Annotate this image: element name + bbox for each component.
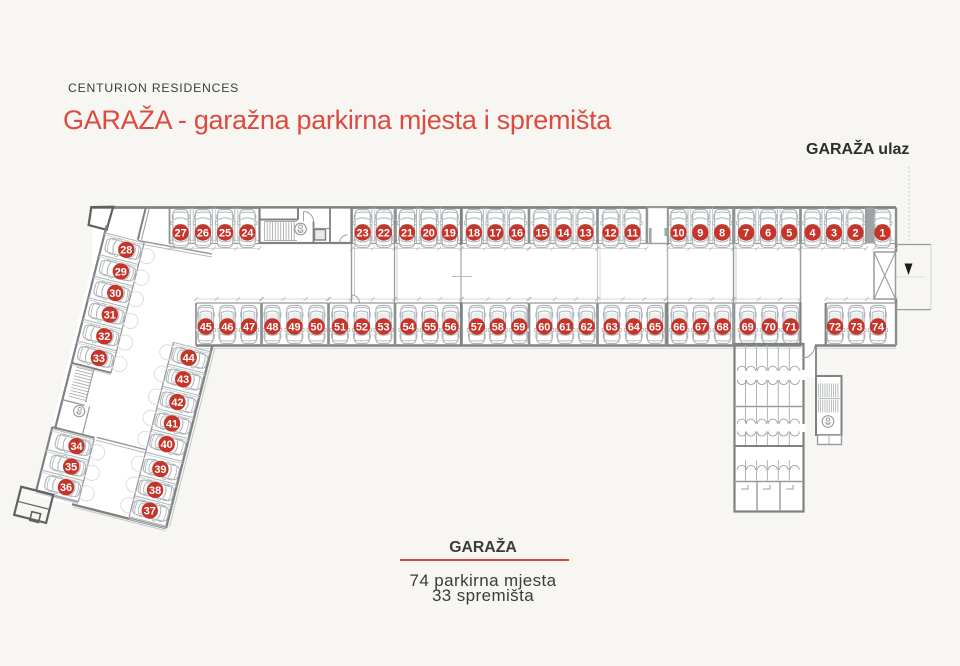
svg-text:18: 18: [468, 227, 480, 239]
svg-text:19: 19: [444, 227, 456, 239]
svg-text:21: 21: [401, 227, 413, 239]
svg-text:57: 57: [471, 321, 483, 333]
svg-text:50: 50: [311, 321, 323, 333]
svg-text:55: 55: [424, 321, 436, 333]
svg-text:7: 7: [743, 227, 749, 239]
svg-text:49: 49: [288, 321, 300, 333]
svg-text:48: 48: [266, 321, 278, 333]
svg-text:11: 11: [627, 227, 639, 239]
svg-text:39: 39: [154, 464, 166, 476]
svg-text:72: 72: [829, 321, 841, 333]
svg-text:41: 41: [166, 418, 178, 430]
svg-text:54: 54: [402, 321, 414, 333]
svg-text:3: 3: [831, 227, 837, 239]
svg-text:32: 32: [98, 331, 110, 343]
svg-text:51: 51: [334, 321, 346, 333]
svg-text:8: 8: [719, 227, 725, 239]
svg-text:67: 67: [695, 321, 707, 333]
svg-text:63: 63: [606, 321, 618, 333]
svg-text:42: 42: [171, 397, 183, 409]
svg-text:1: 1: [879, 227, 885, 239]
svg-text:69: 69: [742, 321, 754, 333]
svg-text:62: 62: [581, 321, 593, 333]
svg-text:46: 46: [221, 321, 233, 333]
svg-text:43: 43: [177, 374, 189, 386]
svg-text:25: 25: [219, 227, 231, 239]
svg-text:59: 59: [513, 321, 525, 333]
svg-text:2: 2: [852, 227, 858, 239]
svg-text:9: 9: [697, 227, 703, 239]
svg-text:23: 23: [357, 227, 369, 239]
svg-text:35: 35: [65, 462, 77, 474]
svg-text:15: 15: [535, 227, 547, 239]
svg-text:20: 20: [423, 227, 435, 239]
svg-text:47: 47: [243, 321, 255, 333]
svg-text:52: 52: [356, 321, 368, 333]
svg-text:36: 36: [60, 482, 72, 494]
svg-text:56: 56: [444, 321, 456, 333]
svg-text:26: 26: [197, 227, 209, 239]
svg-text:17: 17: [489, 227, 501, 239]
svg-text:24: 24: [241, 227, 253, 239]
svg-text:33: 33: [93, 353, 105, 365]
svg-text:64: 64: [628, 321, 640, 333]
svg-text:60: 60: [538, 321, 550, 333]
svg-text:5: 5: [786, 227, 792, 239]
svg-text:10: 10: [672, 227, 684, 239]
svg-text:70: 70: [764, 321, 776, 333]
svg-text:58: 58: [492, 321, 504, 333]
svg-text:37: 37: [144, 506, 156, 518]
svg-text:29: 29: [115, 266, 127, 278]
svg-text:16: 16: [511, 227, 523, 239]
svg-text:34: 34: [70, 441, 82, 453]
svg-text:66: 66: [673, 321, 685, 333]
svg-text:44: 44: [183, 353, 195, 365]
svg-text:14: 14: [557, 227, 569, 239]
svg-text:40: 40: [161, 439, 173, 451]
svg-text:73: 73: [850, 321, 862, 333]
svg-text:45: 45: [200, 321, 212, 333]
svg-text:53: 53: [377, 321, 389, 333]
svg-text:61: 61: [559, 321, 571, 333]
svg-text:65: 65: [649, 321, 661, 333]
svg-text:38: 38: [149, 485, 161, 497]
svg-text:13: 13: [579, 227, 591, 239]
svg-text:27: 27: [175, 227, 187, 239]
svg-text:12: 12: [604, 227, 616, 239]
svg-text:30: 30: [109, 288, 121, 300]
svg-text:31: 31: [104, 310, 116, 322]
svg-text:71: 71: [785, 321, 797, 333]
svg-text:68: 68: [717, 321, 729, 333]
svg-text:28: 28: [120, 245, 132, 257]
svg-text:74: 74: [872, 321, 884, 333]
svg-text:4: 4: [809, 227, 815, 239]
svg-text:6: 6: [765, 227, 771, 239]
svg-text:22: 22: [378, 227, 390, 239]
